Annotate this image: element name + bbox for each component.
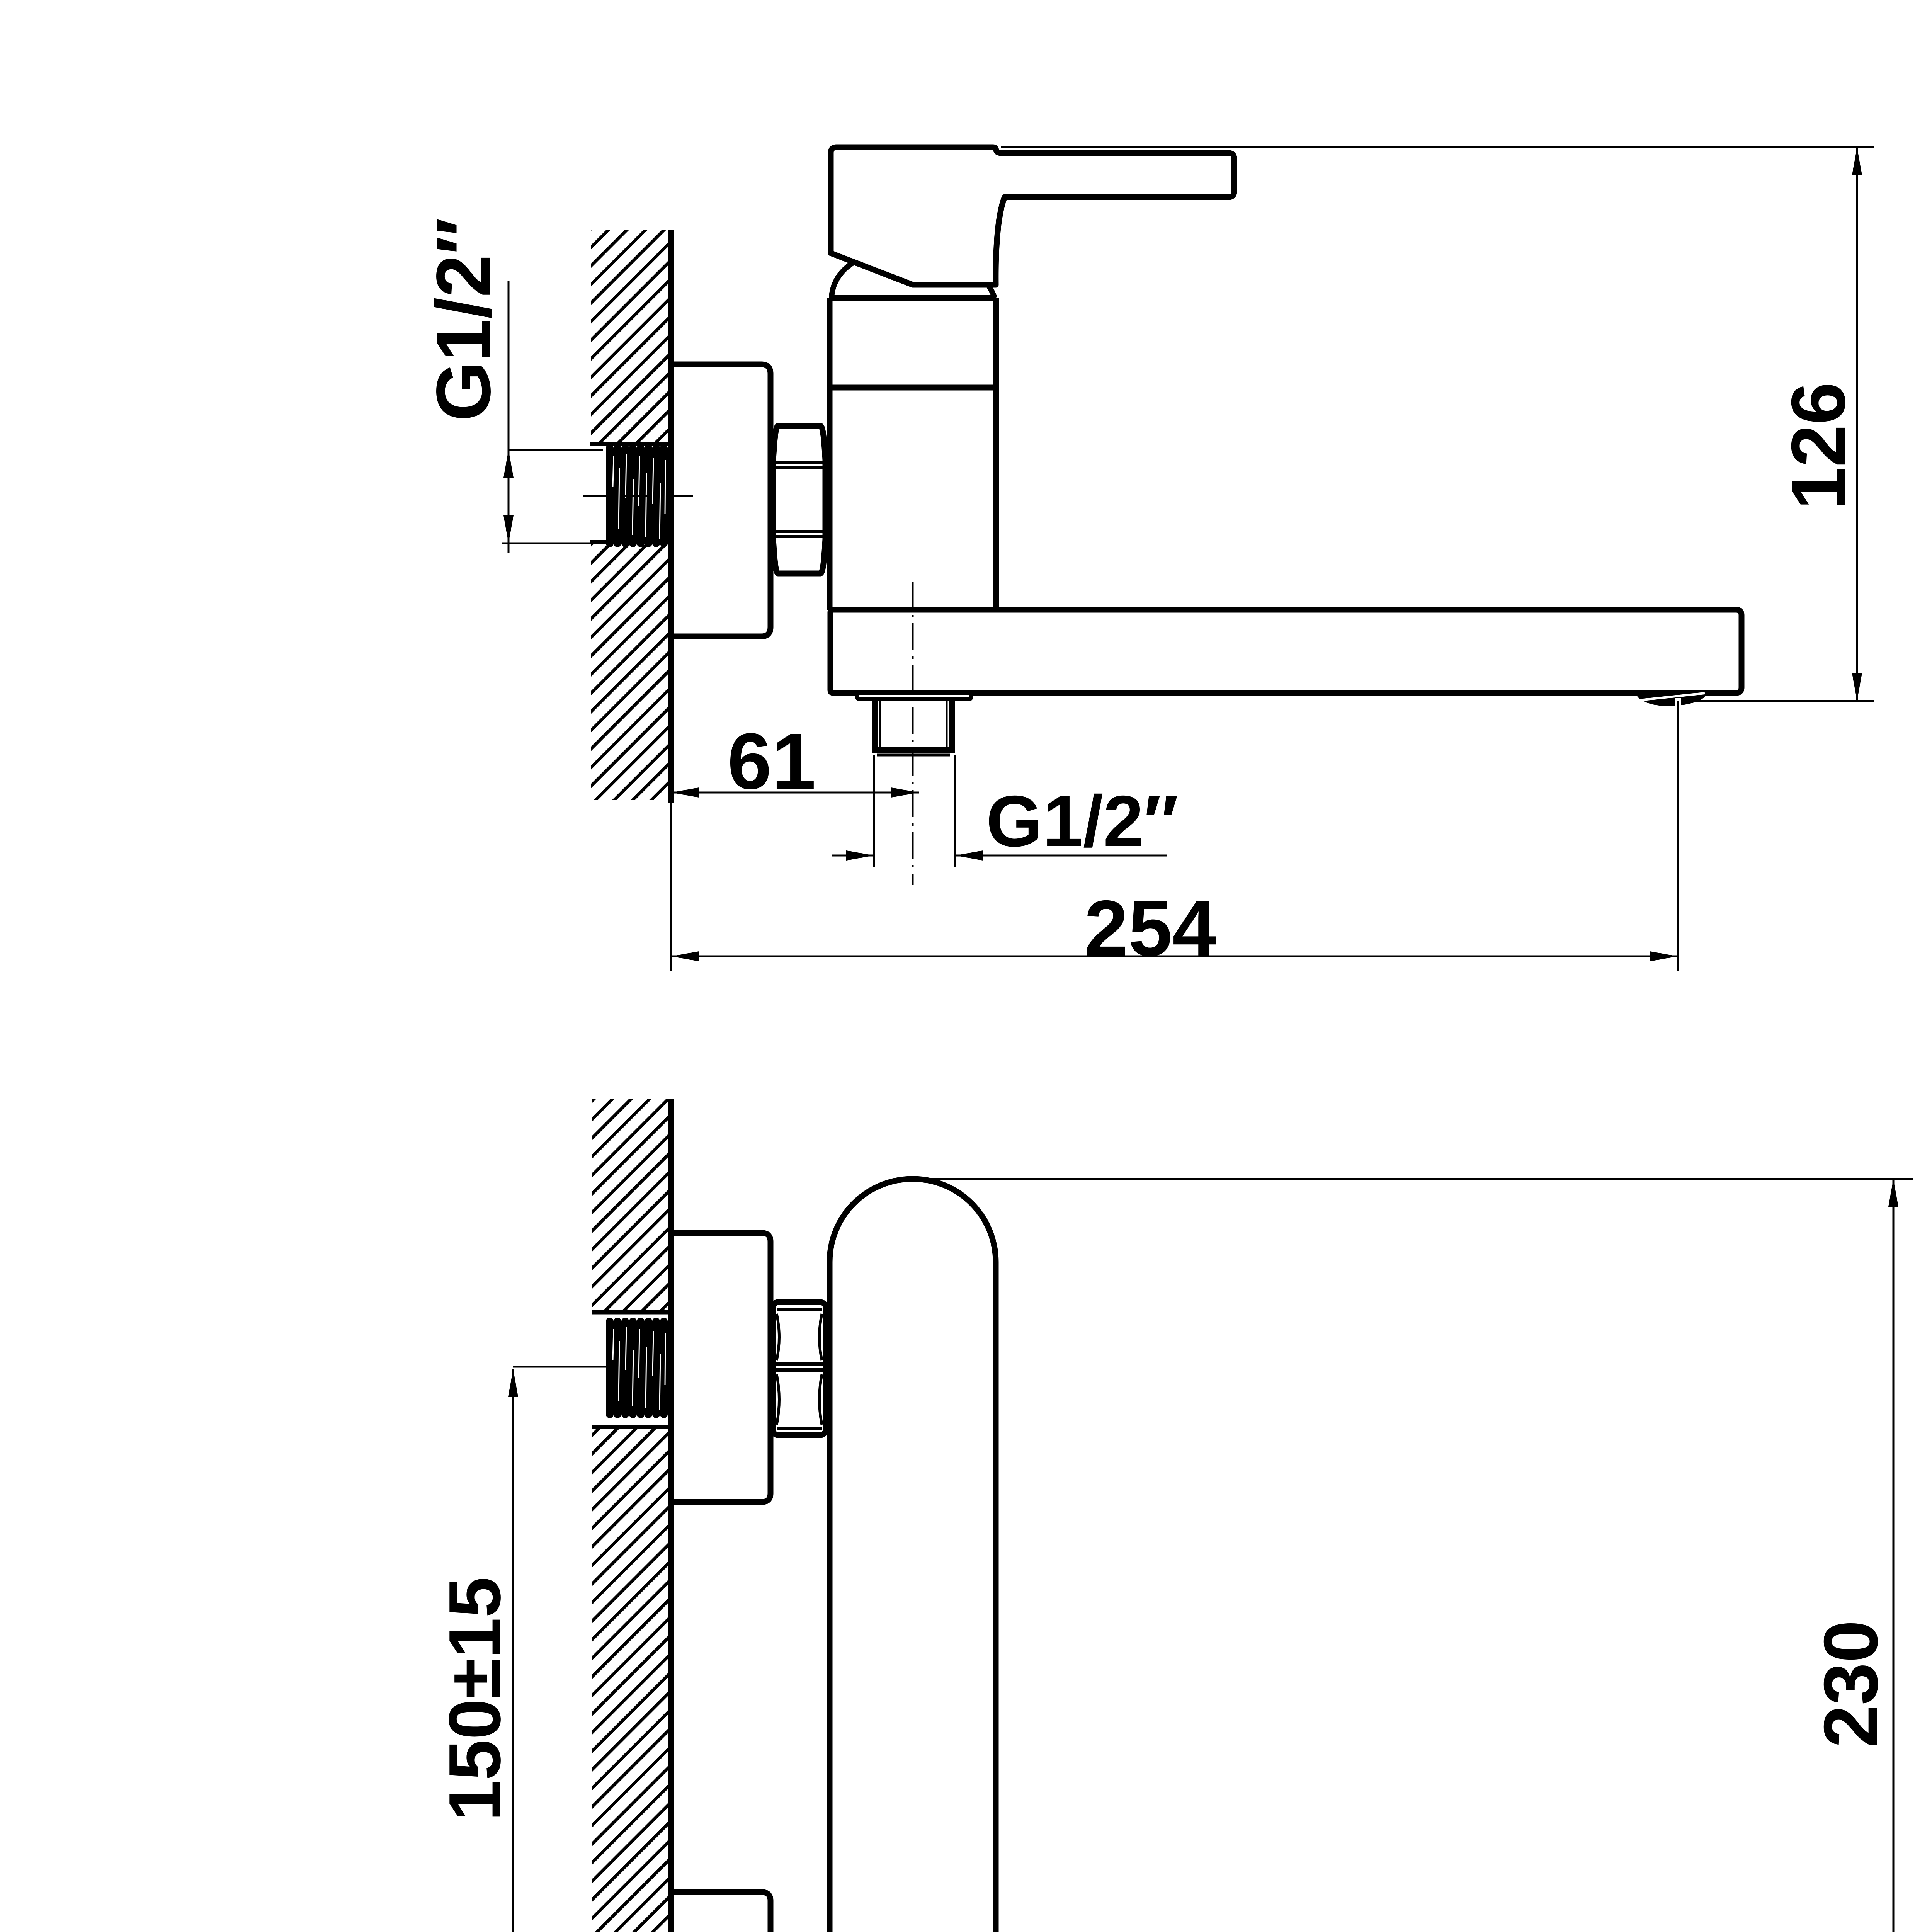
- svg-text:G1/2″: G1/2″: [986, 781, 1179, 862]
- svg-text:230: 230: [1808, 1620, 1893, 1748]
- svg-text:254: 254: [1084, 884, 1216, 973]
- svg-text:150±15: 150±15: [434, 1577, 516, 1821]
- svg-text:126: 126: [1776, 382, 1861, 510]
- svg-text:G1/2″: G1/2″: [421, 218, 507, 422]
